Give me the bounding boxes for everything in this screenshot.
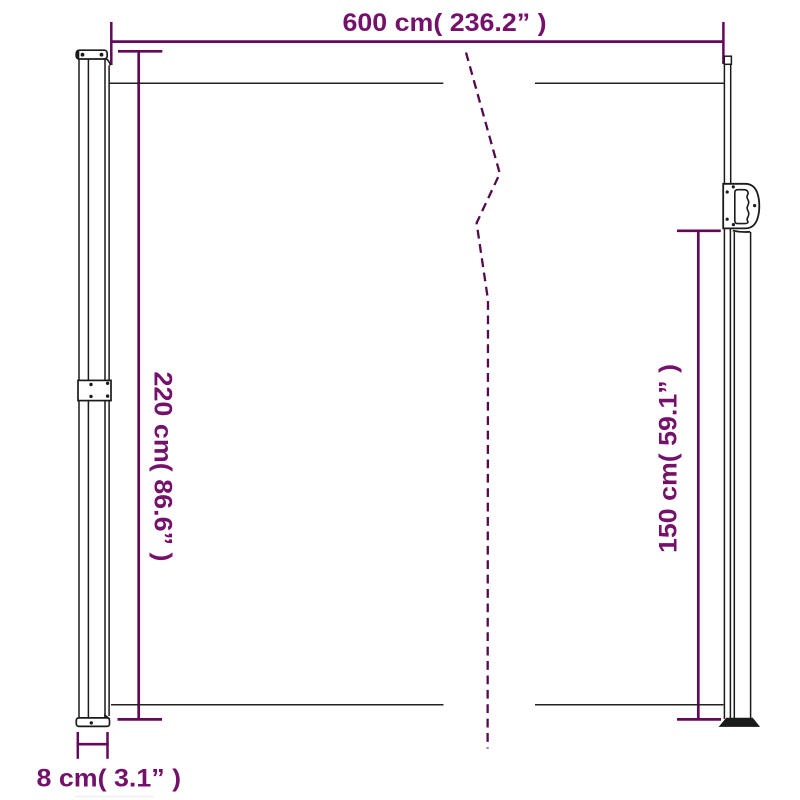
svg-text:150 cm( 59.1” ): 150 cm( 59.1” ) [655,364,683,553]
svg-text:8 cm( 3.1” ): 8 cm( 3.1” ) [37,765,182,793]
svg-text:600 cm( 236.2” ): 600 cm( 236.2” ) [343,9,547,37]
svg-text:220 cm( 86.6” ): 220 cm( 86.6” ) [149,372,177,562]
